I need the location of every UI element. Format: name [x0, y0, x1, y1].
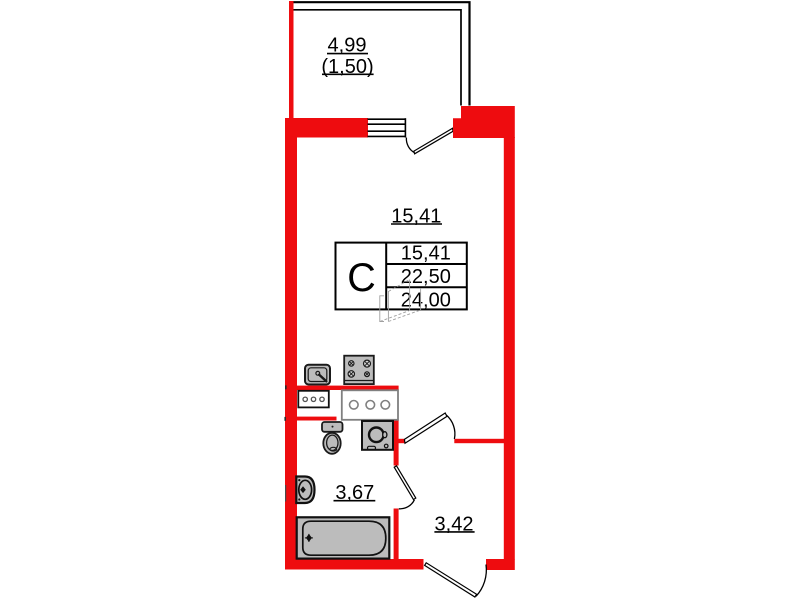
svg-text:22,50: 22,50: [401, 266, 451, 288]
svg-text:15,41: 15,41: [401, 243, 451, 265]
svg-text:С: С: [347, 256, 376, 300]
svg-text:24,00: 24,00: [401, 290, 451, 312]
